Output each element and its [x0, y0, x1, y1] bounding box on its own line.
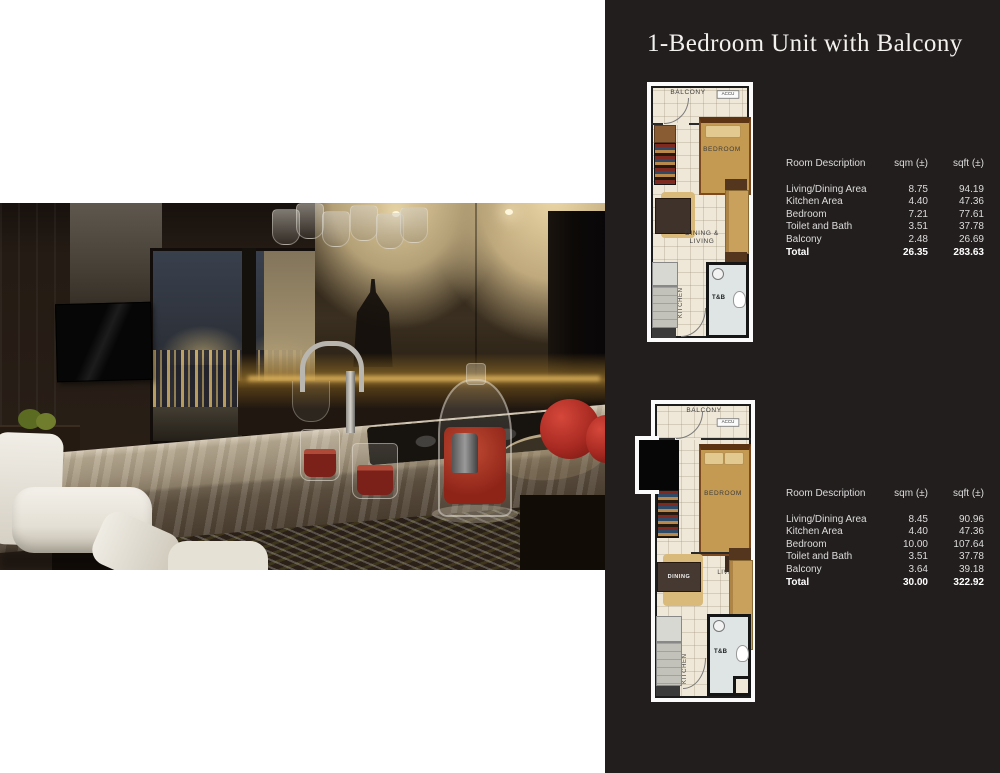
table-a-header: Room Description sqm (±) sqft (±) [786, 158, 986, 171]
plan-a-wardrobe [654, 143, 676, 185]
table-a-total-row: Total 26.35 283.63 [786, 247, 986, 260]
plan-a-entry-door-swing [681, 308, 706, 337]
plan-a-shelf [654, 125, 676, 143]
plan-b-side-table [729, 548, 751, 560]
table-b-header-sqft: sqft (±) [928, 488, 984, 501]
photo-wall-panel [70, 203, 162, 318]
plan-a-tb-toilet [733, 291, 746, 308]
plan-a-tb-label: T&B [712, 295, 725, 301]
table-row: Toilet and Bath 3.51 37.78 [786, 551, 986, 564]
table-b-header: Room Description sqm (±) sqft (±) [786, 488, 986, 501]
info-panel: 1-Bedroom Unit with Balcony BALCONY ACCU… [605, 0, 1000, 773]
plan-b-kitchen-counter [656, 642, 682, 686]
area-table-unit-b: Room Description sqm (±) sqft (±) Living… [786, 488, 986, 589]
photo-drink-glass [300, 429, 340, 481]
table-row: Kitchen Area 4.40 47.36 [786, 196, 986, 209]
plan-a-pillow [705, 125, 741, 138]
page-title: 1-Bedroom Unit with Balcony [647, 30, 987, 58]
table-row: Kitchen Area 4.40 47.36 [786, 526, 986, 539]
plan-b-tb-notch [733, 676, 748, 693]
table-a-header-room: Room Description [786, 158, 888, 171]
photo-plant [36, 413, 56, 430]
table-row: Bedroom 10.00 107.64 [786, 539, 986, 552]
floor-plan-unit-a: BALCONY ACCU BEDROOM DINING & LIVING K [647, 82, 753, 342]
plan-b-tb-toilet [736, 645, 749, 662]
plan-a-kitchen-counter [652, 286, 678, 328]
plan-b-door-swing [676, 412, 703, 439]
plan-a-dining-table [655, 198, 691, 234]
plan-b-kitchen-stove [656, 686, 680, 696]
floor-plan-unit-b: BALCONY ACCU BEDROOM DINING LIVING [651, 400, 755, 702]
table-row: Balcony 3.64 39.18 [786, 564, 986, 577]
table-row: Toilet and Bath 3.51 37.78 [786, 221, 986, 234]
plan-a-tb-sink [712, 268, 724, 280]
plan-b-toilet-bath: T&B [707, 614, 751, 696]
table-b-total-row: Total 30.00 322.92 [786, 577, 986, 590]
photo-red-drink [357, 465, 394, 495]
table-a-header-sqm: sqm (±) [888, 158, 928, 171]
table-row: Bedroom 7.21 77.61 [786, 209, 986, 222]
photo-tv [55, 302, 153, 382]
plan-b-tb-sink [713, 620, 725, 632]
plan-a-dining-living-label: DINING & LIVING [667, 230, 737, 246]
plan-a-kitchen-sink [652, 262, 678, 286]
photo-pendant-light [296, 203, 324, 239]
table-row: Living/Dining Area 8.75 94.19 [786, 184, 986, 197]
photo-pendant-light [350, 205, 378, 241]
plan-b-accu-box: ACCU [717, 418, 740, 426]
plan-b-wardrobe [657, 490, 679, 538]
plan-b-tb-label: T&B [714, 649, 727, 655]
photo-grinder [452, 433, 478, 473]
photo-red-drink [304, 449, 336, 477]
photo-decanter-stopper [466, 363, 486, 385]
kitchen-photo [0, 203, 605, 570]
photo-shadow-right [520, 495, 605, 570]
plan-b-bed [699, 444, 751, 556]
plan-b-entry-door-swing [683, 658, 706, 689]
plan-b-bedroom-label: BEDROOM [695, 490, 751, 497]
plan-b-pillow [704, 452, 724, 465]
plan-a-side-table [725, 179, 747, 190]
plan-b-kitchen-sink [656, 616, 682, 642]
plan-a-bedroom-label: BEDROOM [695, 146, 749, 153]
photo-drink-glass [352, 443, 398, 499]
plan-a-accu-box: ACCU [717, 90, 740, 98]
table-b-header-room: Room Description [786, 488, 888, 501]
floor-plan-unit-b-notch [635, 436, 659, 494]
plan-a-balcony-label: BALCONY [657, 89, 719, 96]
plan-a-door-swing [664, 98, 689, 124]
photo-bar-chair-2 [168, 541, 268, 570]
table-a-header-sqft: sqft (±) [928, 158, 984, 171]
plan-b-dining-table: DINING [657, 562, 701, 592]
plan-a-kitchen-stove [652, 328, 676, 338]
photo-pendant-light [400, 207, 428, 243]
plan-b-pillow [724, 452, 744, 465]
brochure-page: 1-Bedroom Unit with Balcony BALCONY ACCU… [0, 0, 1000, 773]
photo-spotlight [505, 209, 513, 215]
table-row: Living/Dining Area 8.45 90.96 [786, 514, 986, 527]
photo-faucet-stem [346, 371, 355, 433]
photo-pendant-light [322, 211, 350, 247]
plan-a-toilet-bath: T&B [706, 262, 749, 338]
area-table-unit-a: Room Description sqm (±) sqft (±) Living… [786, 158, 986, 259]
table-b-header-sqm: sqm (±) [888, 488, 928, 501]
table-row: Balcony 2.48 26.69 [786, 234, 986, 247]
